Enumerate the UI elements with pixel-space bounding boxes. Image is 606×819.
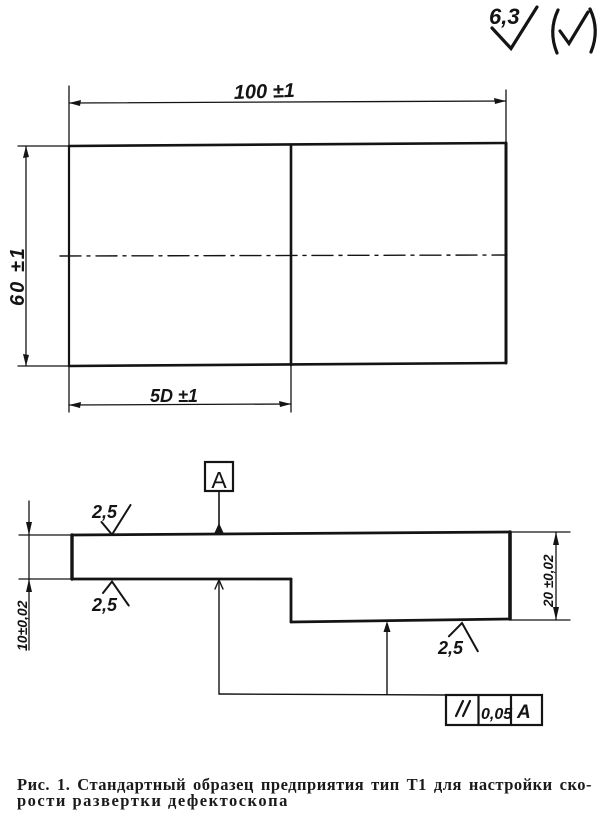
- svg-text:А: А: [516, 702, 531, 723]
- svg-text:2,5: 2,5: [437, 638, 464, 658]
- svg-text:100 ±1: 100 ±1: [233, 80, 295, 104]
- svg-text:60 ±1: 60 ±1: [7, 246, 29, 306]
- svg-text:2,5: 2,5: [91, 502, 118, 522]
- svg-text:20 ±0,02: 20 ±0,02: [541, 554, 556, 608]
- svg-text:5D ±1: 5D ±1: [150, 386, 198, 406]
- svg-text:А: А: [211, 467, 227, 493]
- svg-text:10±0,02: 10±0,02: [14, 600, 30, 651]
- svg-text:2,5: 2,5: [91, 595, 118, 615]
- svg-text:6,3: 6,3: [489, 4, 520, 29]
- svg-text:0,05: 0,05: [481, 706, 513, 723]
